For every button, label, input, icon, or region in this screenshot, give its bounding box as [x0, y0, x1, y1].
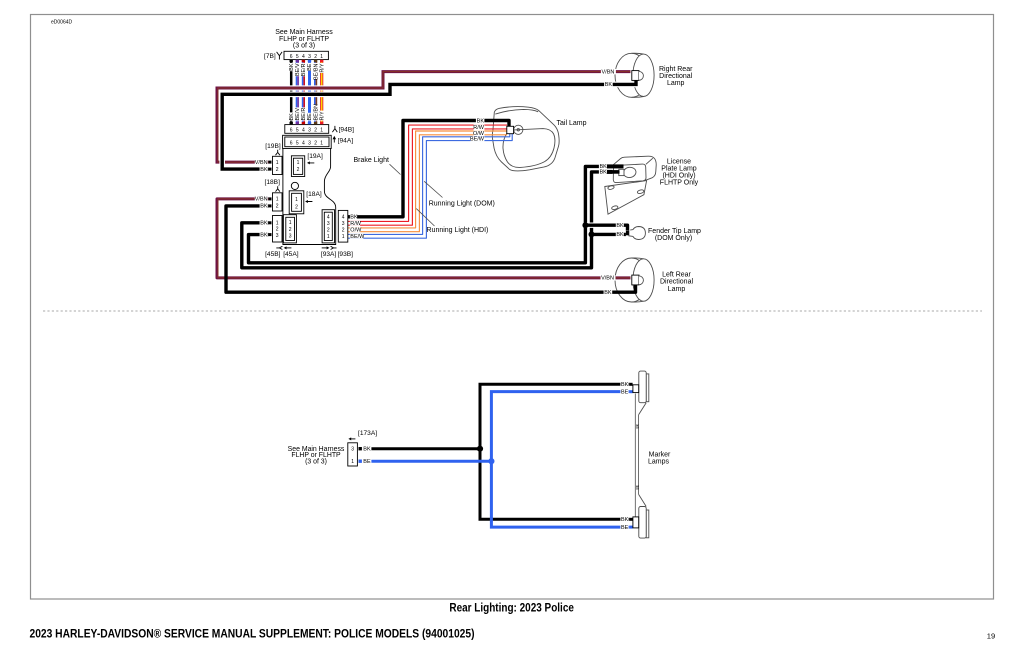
svg-text:BE/BN: BE/BN: [313, 104, 319, 121]
svg-text:BE/V: BE/V: [295, 108, 301, 121]
svg-text:1: 1: [320, 141, 323, 147]
svg-text:2: 2: [314, 141, 317, 147]
svg-text:BK: BK: [260, 204, 268, 210]
svg-text:BK: BK: [260, 221, 268, 227]
svg-text:1: 1: [276, 160, 279, 166]
svg-text:BK: BK: [350, 215, 358, 221]
svg-text:2: 2: [327, 228, 330, 234]
svg-text:2023 HARLEY-DAVIDSON® SERVICE: 2023 HARLEY-DAVIDSON® SERVICE MANUAL SUP…: [30, 626, 475, 640]
svg-text:Rear Lighting: 2023 Police: Rear Lighting: 2023 Police: [449, 600, 574, 614]
svg-text:License: License: [667, 159, 691, 166]
svg-text:Lamp: Lamp: [668, 286, 686, 293]
svg-text:1: 1: [327, 234, 330, 240]
svg-text:BK: BK: [260, 167, 268, 173]
svg-text:BK: BK: [363, 447, 371, 453]
svg-text:[94A]: [94A]: [338, 138, 354, 145]
svg-text:6: 6: [290, 141, 293, 147]
svg-text:5: 5: [296, 127, 299, 133]
svg-text:BK: BK: [477, 118, 485, 124]
svg-text:BK: BK: [600, 170, 608, 176]
svg-text:(HDI Only): (HDI Only): [662, 173, 695, 180]
svg-text:6: 6: [290, 54, 293, 60]
svg-text:Directional: Directional: [660, 279, 694, 286]
svg-text:R/Y: R/Y: [319, 111, 325, 121]
svg-text:[19A]: [19A]: [307, 153, 323, 160]
svg-text:BK: BK: [616, 232, 624, 238]
svg-text:[45B]: [45B]: [265, 251, 281, 258]
svg-text:FLHTP Only: FLHTP Only: [660, 180, 699, 187]
svg-text:Running Light (HDI): Running Light (HDI): [427, 227, 489, 234]
svg-text:1: 1: [289, 220, 292, 226]
svg-text:Plate Lamp: Plate Lamp: [661, 166, 697, 173]
svg-text:4: 4: [302, 141, 305, 147]
svg-text:(DOM Only): (DOM Only): [655, 235, 692, 242]
svg-text:3: 3: [289, 234, 292, 240]
svg-text:BE: BE: [635, 484, 639, 489]
svg-text:BK: BK: [289, 63, 295, 71]
svg-text:5: 5: [296, 141, 299, 147]
svg-text:BE: BE: [363, 459, 371, 465]
svg-text:3: 3: [308, 127, 311, 133]
svg-text:BK: BK: [605, 82, 613, 88]
svg-text:19: 19: [987, 632, 995, 641]
svg-text:[19B]: [19B]: [265, 143, 281, 150]
svg-text:4: 4: [327, 214, 330, 220]
svg-text:O/W: O/W: [350, 228, 362, 234]
svg-text:BE/W: BE/W: [470, 137, 485, 143]
svg-text:[94B]: [94B]: [339, 127, 355, 134]
svg-text:BE/V: BE/V: [295, 63, 301, 76]
svg-text:1: 1: [320, 127, 323, 133]
svg-text:BE/BN: BE/BN: [313, 63, 319, 80]
svg-text:Directional: Directional: [659, 73, 693, 80]
svg-text:BK: BK: [621, 382, 629, 388]
svg-text:Tail Lamp: Tail Lamp: [557, 120, 587, 127]
svg-text:[7B]: [7B]: [264, 53, 276, 60]
svg-text:BE: BE: [307, 113, 313, 121]
svg-text:V/BN: V/BN: [255, 160, 268, 166]
svg-text:[18A]: [18A]: [306, 191, 322, 198]
svg-text:(3 of 3): (3 of 3): [305, 458, 327, 465]
svg-text:BE: BE: [621, 390, 629, 396]
svg-text:R/Y: R/Y: [319, 63, 325, 73]
svg-text:2: 2: [276, 204, 279, 210]
svg-text:1: 1: [295, 197, 298, 203]
svg-text:2: 2: [342, 228, 345, 234]
svg-text:BK: BK: [604, 290, 612, 296]
svg-text:Lamps: Lamps: [648, 459, 670, 466]
svg-text:[93A]: [93A]: [321, 251, 337, 258]
svg-text:3: 3: [351, 446, 354, 452]
svg-text:4: 4: [342, 214, 345, 220]
svg-text:1: 1: [320, 54, 323, 60]
svg-text:1: 1: [297, 160, 300, 166]
svg-text:Marker: Marker: [649, 451, 671, 458]
svg-text:Lamp: Lamp: [667, 80, 685, 87]
svg-text:BK: BK: [616, 223, 624, 229]
svg-text:2: 2: [297, 167, 300, 173]
svg-text:2: 2: [276, 167, 279, 173]
svg-text:R/W: R/W: [350, 221, 362, 227]
svg-text:V/BN: V/BN: [601, 276, 614, 282]
svg-text:2: 2: [314, 127, 317, 133]
svg-text:(3 of 3): (3 of 3): [293, 43, 315, 50]
svg-text:2: 2: [295, 204, 298, 210]
svg-text:Right Rear: Right Rear: [659, 66, 693, 73]
svg-text:BK: BK: [635, 423, 639, 428]
svg-text:BE: BE: [307, 63, 313, 71]
svg-text:[93B]: [93B]: [338, 251, 354, 258]
svg-text:BE/R: BE/R: [301, 108, 307, 121]
svg-text:3: 3: [342, 221, 345, 227]
svg-text:[45A]: [45A]: [283, 251, 299, 258]
svg-text:2: 2: [276, 227, 279, 233]
svg-text:[173A]: [173A]: [358, 430, 377, 437]
svg-text:BK: BK: [260, 232, 268, 238]
svg-text:3: 3: [327, 221, 330, 227]
svg-text:BE/R: BE/R: [301, 63, 307, 76]
svg-text:BE: BE: [621, 525, 629, 531]
svg-text:V/BN: V/BN: [602, 69, 615, 75]
svg-text:Brake Light: Brake Light: [354, 157, 389, 164]
svg-text:Running Light (DOM): Running Light (DOM): [429, 201, 495, 208]
svg-text:1: 1: [276, 197, 279, 203]
svg-text:BK: BK: [621, 517, 629, 523]
svg-text:1: 1: [276, 221, 279, 227]
svg-text:5: 5: [296, 54, 299, 60]
svg-text:1: 1: [342, 234, 345, 240]
svg-text:4: 4: [302, 54, 305, 60]
svg-text:1: 1: [351, 459, 354, 465]
svg-text:2: 2: [289, 227, 292, 233]
svg-text:BK: BK: [289, 113, 295, 121]
svg-text:4: 4: [302, 127, 305, 133]
svg-text:2: 2: [314, 54, 317, 60]
svg-text:Left Rear: Left Rear: [662, 272, 691, 279]
svg-text:eD0064D: eD0064D: [51, 20, 73, 26]
svg-text:[18B]: [18B]: [265, 179, 281, 186]
svg-text:3: 3: [276, 233, 279, 239]
svg-text:3: 3: [308, 141, 311, 147]
svg-text:6: 6: [290, 127, 293, 133]
svg-text:BE/W: BE/W: [350, 234, 365, 240]
svg-text:3: 3: [308, 54, 311, 60]
svg-text:V/BN: V/BN: [255, 197, 268, 203]
